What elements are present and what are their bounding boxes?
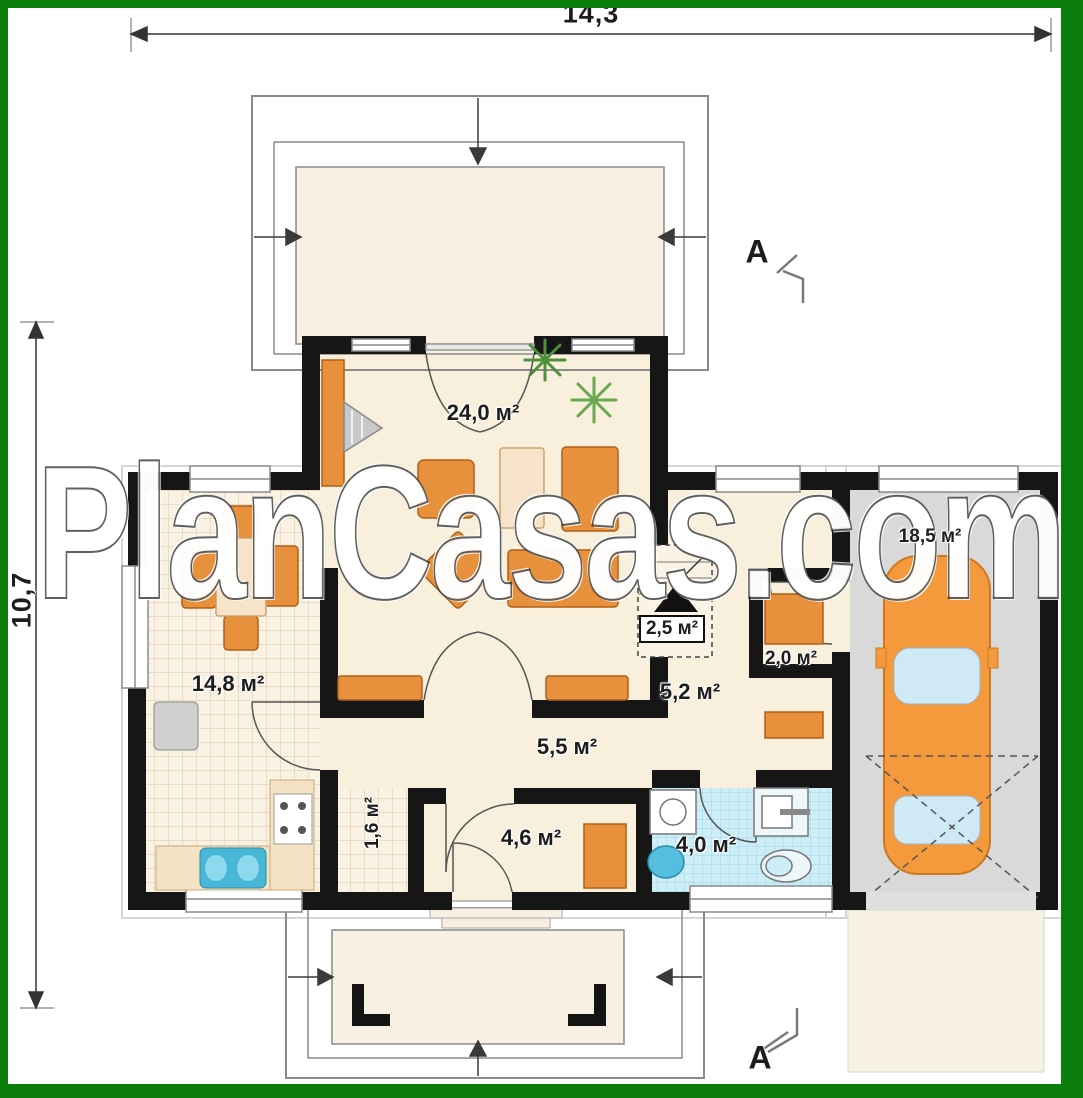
room-label-pantry: 1,6 м² xyxy=(362,797,384,849)
dimension-height-label: 10,7 xyxy=(7,572,38,629)
shelf xyxy=(765,712,823,738)
rear-window xyxy=(894,796,980,844)
sofa-corner xyxy=(508,550,618,607)
porch xyxy=(286,908,704,1078)
section-marker-top: A xyxy=(745,234,768,271)
window xyxy=(690,886,832,912)
cabinet xyxy=(765,594,823,644)
terrace xyxy=(252,96,708,370)
wardrobe-cabinet xyxy=(584,824,626,888)
room-label-living: 24,0 м² xyxy=(447,400,520,426)
section-marker-bottom: A xyxy=(748,1040,771,1077)
room-label-hall: 5,5 м² xyxy=(537,734,597,760)
room-label-stairs: 2,5 м² xyxy=(646,618,698,640)
stove xyxy=(274,794,312,844)
window xyxy=(716,466,800,492)
room-label-corridor: 5,2 м² xyxy=(660,679,720,705)
sofa xyxy=(562,447,618,531)
chair xyxy=(264,546,298,606)
dimension-width-label: 14,3 xyxy=(563,0,620,30)
room-label-vestibule: 4,6 м² xyxy=(501,825,561,851)
room-label-garage: 18,5 м² xyxy=(899,526,962,548)
room-label-closet: 2,0 м² xyxy=(765,648,817,670)
armchair xyxy=(418,460,474,518)
room-label-bathroom: 4,0 м² xyxy=(676,832,736,858)
water-heater xyxy=(154,702,198,750)
dining-table xyxy=(216,538,266,616)
garage-opening xyxy=(866,892,1036,910)
window xyxy=(122,566,148,688)
stairs xyxy=(638,545,712,657)
driveway xyxy=(848,910,1044,1072)
car xyxy=(876,556,998,874)
window xyxy=(190,466,270,492)
bench xyxy=(546,676,628,700)
window xyxy=(572,339,634,351)
section-line-top xyxy=(777,255,803,303)
bench xyxy=(338,676,422,700)
chair xyxy=(182,548,216,608)
floor-plan-drawing xyxy=(0,0,1083,1098)
terrace-door-sill xyxy=(426,344,534,350)
floor-plan-canvas: PlanCasas.com 14,3 10,7 A A 24,0 м² 14,8… xyxy=(0,0,1083,1098)
windshield xyxy=(894,648,980,704)
washing-machine xyxy=(650,790,696,834)
window xyxy=(879,466,1018,492)
shelf xyxy=(322,360,344,486)
window xyxy=(352,339,410,351)
chair xyxy=(224,616,258,650)
side-table xyxy=(500,448,544,528)
dimension-left xyxy=(20,322,54,1008)
room-label-dining: 14,8 м² xyxy=(192,671,265,697)
